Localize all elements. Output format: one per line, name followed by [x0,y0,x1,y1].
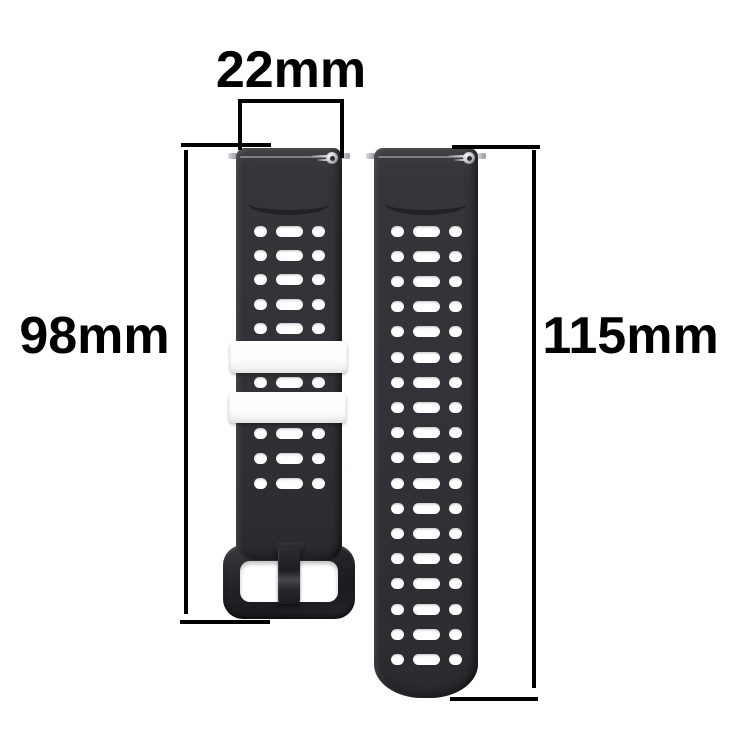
pin-hole [413,301,440,312]
quick-release-lines-icon [311,155,327,161]
pin-hole [413,352,440,363]
hole-row [236,453,342,464]
pin-hole [391,629,404,640]
pin-hole [254,274,267,285]
hole-row [374,478,478,489]
pin-hole [391,326,404,337]
pin-hole [391,226,404,237]
pin-hole [449,528,462,539]
hole-row [374,604,478,615]
hole-row [374,276,478,287]
pin-hole [312,453,325,464]
pin-hole [413,452,440,463]
pin-hole [312,377,325,388]
hole-row [236,323,342,334]
hole-row [374,452,478,463]
pin-hole [449,604,462,615]
pin-hole [312,323,325,334]
hole-strap-length-tick-top [452,145,540,149]
spring-bar-pin [477,153,486,159]
pin-hole [254,226,267,237]
pin-hole [449,629,462,640]
pin-hole [276,299,303,310]
pin-hole [449,553,462,564]
pin-hole [449,377,462,388]
hole-row [374,352,478,363]
pin-hole [391,553,404,564]
strap-molded-ridge [248,192,330,215]
keeper-loop-2 [229,392,346,423]
pin-hole [391,427,404,438]
pin-hole [449,402,462,413]
pin-hole [276,478,303,489]
hole-strap-length-tick-bottom [450,697,538,701]
pin-hole [391,251,404,262]
hole-row [374,402,478,413]
width-dimension-line [238,99,344,103]
pin-hole [413,251,440,262]
pin-hole [254,453,267,464]
pin-hole [413,553,440,564]
pin-hole [391,402,404,413]
quick-release-knob-icon [463,152,475,164]
buckle-strap-length-label: 98mm [12,308,177,365]
pin-hole [449,478,462,489]
hole-row [374,654,478,665]
hole-row [374,553,478,564]
pin-hole [413,226,440,237]
quick-release-knob-icon [326,152,338,164]
hole-row [374,326,478,337]
pin-hole [391,301,404,312]
quick-release-lines-icon [448,155,464,161]
strap-molded-ridge [385,192,467,215]
pin-hole [254,250,267,261]
pin-hole [413,402,440,413]
hole-row [236,428,342,439]
pin-hole [449,452,462,463]
pin-hole [413,503,440,514]
pin-hole [254,428,267,439]
pin-hole [391,578,404,589]
hole-row [236,226,342,237]
hole-strap-length-line [532,150,536,688]
width-dimension-label: 22mm [191,42,391,99]
hole-row [374,377,478,388]
pin-hole [312,428,325,439]
pin-hole [276,274,303,285]
hole-row [374,528,478,539]
pin-hole [312,250,325,261]
pin-hole [276,226,303,237]
pin-hole [254,478,267,489]
hole-row [374,503,478,514]
pin-hole [391,654,404,665]
pin-hole [312,478,325,489]
quick-release-tab-icon [311,152,338,164]
pin-hole [449,352,462,363]
hole-row [236,299,342,310]
hole-row [374,251,478,262]
pin-hole [449,251,462,262]
pin-hole [449,301,462,312]
pin-hole [391,377,404,388]
pin-hole [312,299,325,310]
pin-hole [413,377,440,388]
hole-row [236,377,342,388]
pin-hole [276,377,303,388]
watch-strap-dimension-diagram: 22mm 98mm 115mm [0,0,750,750]
hole-row [236,274,342,285]
pin-hole [254,299,267,310]
hole-strap [374,148,478,698]
quick-release-tab-icon [448,152,475,164]
pin-hole [413,528,440,539]
pin-hole [449,276,462,287]
pin-hole [413,427,440,438]
pin-hole [276,250,303,261]
pin-hole [312,274,325,285]
hole-strap-length-label: 115mm [533,308,728,365]
pin-hole [391,478,404,489]
pin-hole [391,503,404,514]
pin-hole [449,503,462,514]
hole-row [236,478,342,489]
pin-hole [312,226,325,237]
buckle-strap-length-line [184,150,188,614]
pin-hole [413,276,440,287]
pin-hole [413,578,440,589]
hole-row [374,427,478,438]
pin-hole [413,604,440,615]
pin-hole [449,226,462,237]
hole-row [374,578,478,589]
hole-row [374,629,478,640]
pin-hole [391,604,404,615]
pin-hole [449,654,462,665]
pin-hole [254,323,267,334]
hole-row [236,250,342,261]
pin-hole [449,427,462,438]
pin-hole [276,323,303,334]
pin-hole [449,578,462,589]
pin-hole [254,377,267,388]
hole-row [374,301,478,312]
pin-hole [391,452,404,463]
pin-hole [391,352,404,363]
width-dimension-tick-right [340,99,344,158]
buckle-strap-length-tick-top [181,143,271,147]
pin-hole [276,453,303,464]
pin-hole [276,428,303,439]
pin-hole [413,326,440,337]
pin-hole [449,326,462,337]
pin-hole [391,276,404,287]
buckle-tongue [278,548,300,604]
hole-row [374,226,478,237]
pin-hole [413,478,440,489]
pin-hole [391,528,404,539]
keeper-loop-1 [230,341,347,373]
pin-hole [413,629,440,640]
buckle-strap-length-tick-bottom [180,620,270,624]
pin-hole [413,654,440,665]
